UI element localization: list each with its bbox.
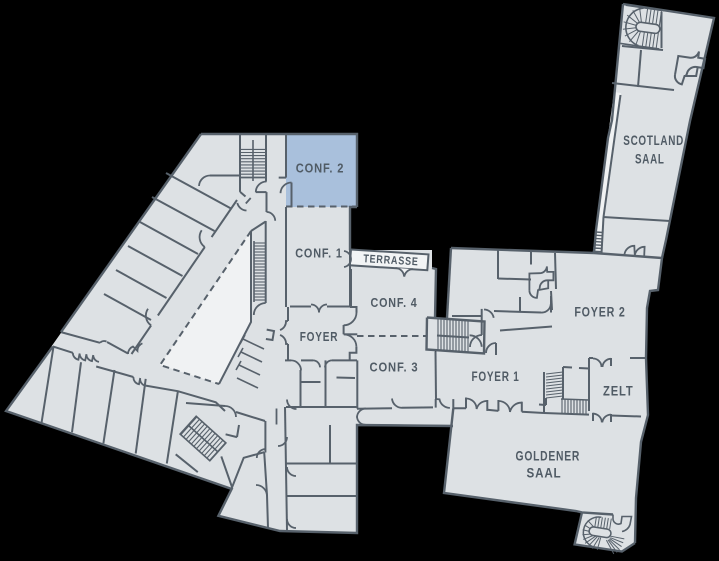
svg-text:CONF. 2: CONF. 2 xyxy=(296,161,345,176)
svg-text:CONF. 3: CONF. 3 xyxy=(370,360,419,375)
svg-text:SAAL: SAAL xyxy=(527,465,562,481)
svg-text:SCOTLAND: SCOTLAND xyxy=(623,132,684,148)
svg-text:FOYER: FOYER xyxy=(300,329,339,344)
svg-text:ZELT: ZELT xyxy=(603,383,634,398)
svg-text:FOYER 1: FOYER 1 xyxy=(472,369,520,384)
svg-text:CONF. 1: CONF. 1 xyxy=(295,246,343,261)
svg-text:CONF. 4: CONF. 4 xyxy=(371,295,418,310)
svg-text:FOYER 2: FOYER 2 xyxy=(574,305,625,320)
svg-text:GOLDENER: GOLDENER xyxy=(516,448,581,464)
svg-text:SAAL: SAAL xyxy=(635,150,665,166)
